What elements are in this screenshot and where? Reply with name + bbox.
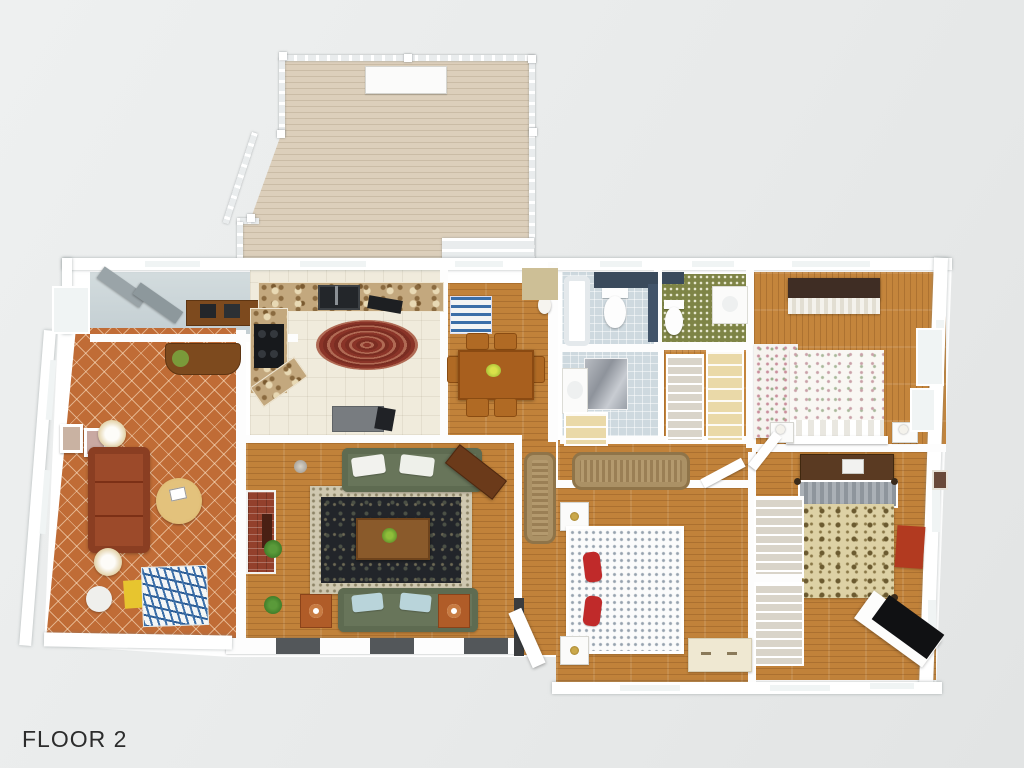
living-potted-plant [264,540,282,558]
bedroom3-dresser [688,638,752,672]
sofa-pillow-blue [399,592,432,612]
masterbath-vanity [562,368,588,414]
bath2-navy-accent [662,272,684,284]
sunroom-chair [172,350,189,367]
range-burner [270,330,278,338]
bedroom2-red-rug [895,525,926,569]
dining-centerpiece [486,364,501,377]
coffee-table-plant [382,528,397,543]
wall-sunroom-kitchen [236,330,246,645]
deck-post [277,130,285,138]
wall-picture-frame [60,424,83,453]
side-table-ring [309,604,323,618]
sunroom-daybed [141,565,209,627]
window-left-bay [52,286,90,334]
window-top [600,261,642,267]
kitchen-range [254,324,284,368]
closet-wire-shelves [754,496,804,578]
closet-wire-shelves [754,582,804,666]
masterbath-navy-wall-side [648,284,658,342]
bedroom3-red-pillow [582,551,603,583]
living-fireplace [246,490,276,574]
nightstand-knob [570,512,579,521]
bedroom3-bed [566,526,684,654]
dresser-handle [701,652,711,655]
bedroom3-nightstand [560,636,589,665]
closet-divider-wall [752,574,802,582]
deck-post [404,54,412,62]
sunroom-sofa-cushion-line [95,515,143,517]
sunroom-lamp-table [98,420,126,448]
wall-kitchen-living [246,435,522,443]
dining-chair [494,333,517,350]
dining-chair [466,333,489,350]
mudroom-appliance [224,304,240,318]
floor-label: FLOOR 2 [22,726,127,753]
bedroom1-window-panel [910,388,936,432]
range-burner [270,350,278,358]
bath2-vanity [712,286,748,324]
kitchen-island-dark [374,407,396,432]
wall-bedroom1-bedroom2 [752,444,946,452]
bedroom1-bed [790,350,884,422]
deck-railing-right [529,58,535,261]
sunroom-lamp-table [94,548,122,576]
living-window-wall-bottom [226,638,520,654]
kitchen-sink [318,285,360,310]
hall-runner-vertical [524,452,556,544]
dining-chair [494,398,517,417]
mudroom-appliance [200,304,216,318]
window-bottom [620,685,680,691]
living-side-table [438,594,470,628]
wall-bath2-bottom [658,342,748,350]
deck-bench [365,66,447,94]
bedroom2-wall-picture [932,470,948,490]
masterbath-tub [564,276,590,346]
window-top [145,261,200,267]
window-top [792,261,870,267]
bedroom2-bed [798,504,894,598]
window-top [455,261,503,267]
masterbath-toilet [604,296,626,328]
nightstand-lamp [776,425,785,434]
vanity-sink-bowl [567,381,583,399]
sofa-pillow-white [399,454,435,477]
nightstand-lamp [899,425,908,434]
masterbath-linen-cabinet [564,412,608,446]
kitchen-oval-rug [316,320,418,370]
bedroom1-dresser-front [788,298,880,314]
bedroom1-window-panel [916,328,944,386]
hall-linen-closet [706,350,744,442]
masterbath-shower [584,358,628,410]
sunroom-round-coffee-table [156,478,202,524]
deck-railing-left-diagonal [223,132,258,224]
living-lamp [294,460,307,473]
dining-blue-rug [450,296,492,334]
window-bottom [870,683,914,689]
dresser-handle [727,652,737,655]
living-potted-plant [264,596,282,614]
window-bottom [770,685,830,691]
deck-post [528,55,536,63]
bath2-toilet [665,307,683,335]
walkin-closet-shelves [666,354,704,442]
sunroom-white-table [86,586,112,612]
hall-runner-horizontal [572,452,690,490]
deck-door-landing [522,268,558,300]
bedroom2-laptop [842,459,864,474]
side-table-ring [447,604,461,618]
bedroom1-headboard [786,436,888,444]
sunroom-sofa-cushion-line [95,481,143,483]
sunroom-rust-sofa [88,447,150,553]
deck-post [529,128,537,136]
deck-post [279,52,287,60]
deck-railing-left-lower [237,222,243,262]
sofa-pillow-blue [351,592,384,612]
kitchen-sink-divider [335,286,338,305]
range-burner [258,330,266,338]
nightstand-knob [570,646,579,655]
bedroom1-dresser [788,278,880,300]
bath2-sink-bowl [722,296,738,312]
living-side-table [300,594,332,628]
range-burner [258,350,266,358]
deck-railing-left-upper [279,58,285,136]
bed-post [794,478,801,485]
dining-chair [466,398,489,417]
deck-post [247,214,255,222]
window-top [300,261,366,267]
sunroom-wall-bottom [44,632,232,649]
bed-post [891,478,898,485]
window-top [692,261,734,267]
